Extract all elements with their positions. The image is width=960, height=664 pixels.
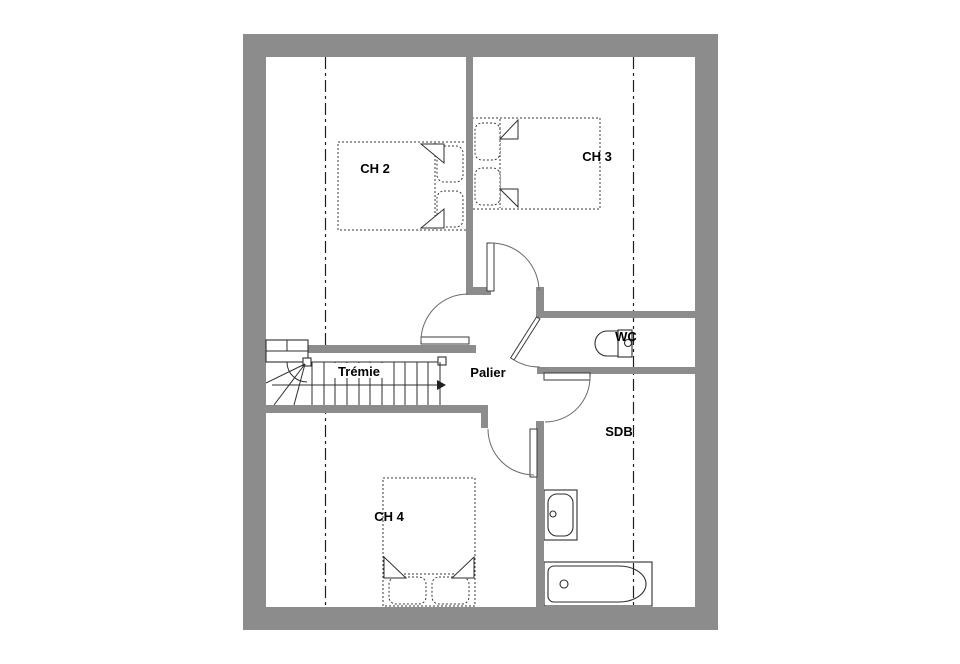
room-label-sdb: SDB	[605, 424, 632, 439]
wall-palier-sw-stub	[481, 411, 488, 428]
door-swing-icon	[421, 294, 468, 341]
bed-ch4	[383, 478, 475, 606]
room-label-ch4: CH 4	[374, 509, 404, 524]
outer-wall-right	[695, 34, 718, 630]
pillow-icon	[475, 168, 500, 205]
sdb-fixtures	[544, 490, 652, 606]
door-leaf-ch2	[421, 337, 469, 344]
door-swing-icon	[514, 360, 540, 367]
floor-plan-page: CH 2 CH 3 CH 4 Trémie Palier WC SDB	[0, 0, 960, 664]
door-swing-icon	[491, 243, 539, 291]
pillow-icon	[389, 577, 426, 604]
wall-ch2-ch3-divider	[466, 57, 473, 294]
pillow-icon	[432, 577, 469, 604]
outer-wall-left	[243, 34, 266, 630]
room-label-ch2: CH 2	[360, 161, 390, 176]
wall-wc-north	[536, 311, 695, 318]
pillow-icon	[475, 123, 500, 160]
bed-ch2	[338, 142, 468, 230]
outer-wall-top	[243, 34, 718, 57]
bed-ch3	[472, 118, 600, 209]
wall-stair-south	[264, 405, 488, 413]
room-label-wc: WC	[615, 329, 637, 344]
room-label-ch3: CH 3	[582, 149, 612, 164]
outer-wall-bottom	[243, 607, 718, 630]
room-label-tremie: Trémie	[338, 364, 380, 379]
door-leaf-ch3	[487, 243, 494, 291]
door-leaf-ch4	[530, 429, 537, 477]
door-leaf-sdb	[544, 373, 590, 380]
door-swing-icon	[545, 377, 590, 422]
washbasin-drain	[550, 511, 556, 517]
room-label-palier: Palier	[470, 365, 505, 380]
bathtub-drain	[560, 580, 568, 588]
door-leaf-wc	[511, 317, 540, 360]
floor-plan-drawing: CH 2 CH 3 CH 4 Trémie Palier WC SDB	[0, 0, 960, 664]
stair-end-post	[438, 357, 446, 365]
door-swing-icon	[488, 429, 534, 475]
